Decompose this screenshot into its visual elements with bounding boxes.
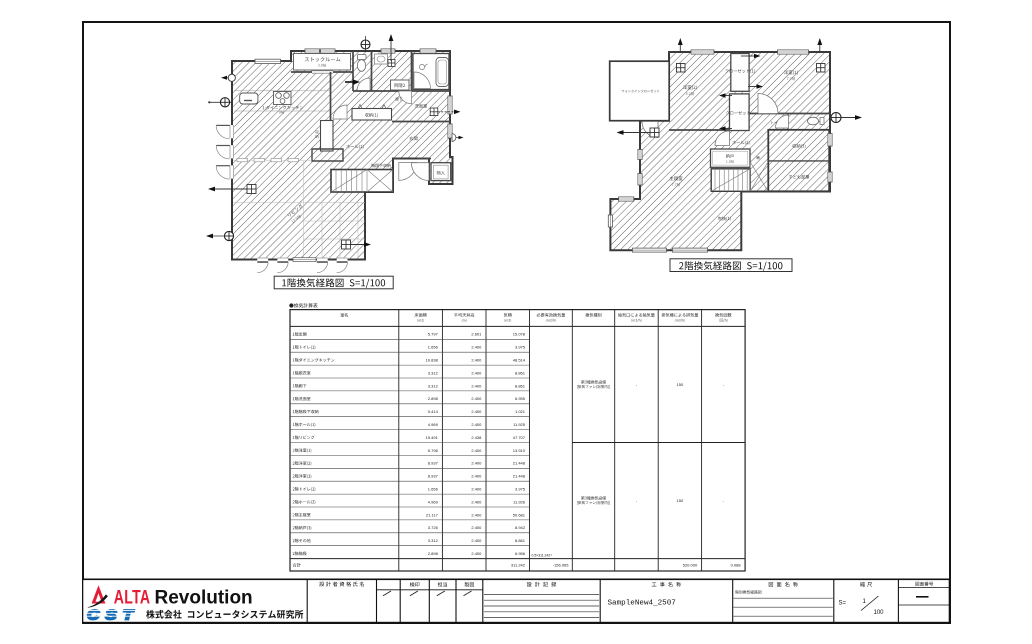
svg-text:15.078: 15.078 <box>513 332 526 337</box>
svg-text:2.438: 2.438 <box>471 435 482 440</box>
svg-text:2.400: 2.400 <box>471 396 482 401</box>
svg-text:-156.065: -156.065 <box>553 563 570 568</box>
svg-text:3.312: 3.312 <box>428 538 439 543</box>
svg-text:ALTA: ALTA <box>114 586 151 608</box>
svg-text:2.400: 2.400 <box>471 422 482 427</box>
svg-text:2.400: 2.400 <box>471 345 482 350</box>
svg-text:19.838: 19.838 <box>426 357 439 362</box>
svg-text:4.969: 4.969 <box>428 422 439 427</box>
svg-text:8.861: 8.861 <box>515 370 526 375</box>
svg-text:2.400: 2.400 <box>471 538 482 543</box>
svg-text:6.956: 6.956 <box>515 551 526 556</box>
svg-text:1.021: 1.021 <box>515 409 526 414</box>
svg-text:8.942: 8.942 <box>515 525 526 530</box>
svg-text:Revolution: Revolution <box>155 587 253 608</box>
svg-text:150: 150 <box>677 498 684 503</box>
svg-text:11.925: 11.925 <box>513 422 526 427</box>
svg-text:311.242: 311.242 <box>511 563 526 568</box>
svg-text:1.656: 1.656 <box>428 345 439 350</box>
svg-text:11.926: 11.926 <box>513 499 526 504</box>
svg-text:8.937: 8.937 <box>428 461 439 466</box>
svg-text:2.400: 2.400 <box>471 357 482 362</box>
svg-text:1.656: 1.656 <box>428 486 439 491</box>
svg-text:2.400: 2.400 <box>471 474 482 479</box>
svg-text:4.969: 4.969 <box>428 499 439 504</box>
svg-text:5.796: 5.796 <box>428 448 439 453</box>
svg-text:2.400: 2.400 <box>471 383 482 388</box>
svg-text:2.898: 2.898 <box>428 396 439 401</box>
svg-text:3.312: 3.312 <box>428 383 439 388</box>
svg-text:100: 100 <box>874 610 885 616</box>
svg-text:47.707: 47.707 <box>513 435 526 440</box>
svg-text:520.000: 520.000 <box>683 563 698 568</box>
svg-text:0.414: 0.414 <box>428 409 439 414</box>
svg-text:S=: S= <box>839 601 847 607</box>
svg-text:48.514: 48.514 <box>513 357 526 362</box>
svg-text:2.400: 2.400 <box>471 512 482 517</box>
svg-text:8.937: 8.937 <box>428 474 439 479</box>
svg-text:19.491: 19.491 <box>426 435 439 440</box>
svg-text:2.400: 2.400 <box>471 525 482 530</box>
svg-text:2.400: 2.400 <box>471 551 482 556</box>
svg-text:0.088: 0.088 <box>731 563 742 568</box>
svg-text:2.400: 2.400 <box>471 486 482 491</box>
svg-text:2.400: 2.400 <box>471 499 482 504</box>
svg-text:2.400: 2.400 <box>471 409 482 414</box>
svg-text:13.910: 13.910 <box>513 448 526 453</box>
svg-text:3.312: 3.312 <box>428 370 439 375</box>
svg-text:2.898: 2.898 <box>428 551 439 556</box>
svg-text:150: 150 <box>677 382 684 387</box>
svg-text:21.448: 21.448 <box>513 474 526 479</box>
svg-text:SampleNew4_2507: SampleNew4_2507 <box>608 599 676 607</box>
svg-text:2.400: 2.400 <box>471 370 482 375</box>
svg-text:2.400: 2.400 <box>471 448 482 453</box>
svg-text:3.975: 3.975 <box>515 345 526 350</box>
svg-text:3.975: 3.975 <box>515 486 526 491</box>
svg-text:21.117: 21.117 <box>426 512 439 517</box>
svg-text:3.726: 3.726 <box>428 525 439 530</box>
svg-text:50.681: 50.681 <box>513 512 526 517</box>
svg-text:0.5×311.242=: 0.5×311.242= <box>532 554 553 558</box>
svg-text:8.861: 8.861 <box>515 383 526 388</box>
svg-text:21.448: 21.448 <box>513 461 526 466</box>
svg-text:5.797: 5.797 <box>428 332 439 337</box>
svg-text:6.955: 6.955 <box>515 396 526 401</box>
svg-text:8.861: 8.861 <box>515 538 526 543</box>
svg-text:2.400: 2.400 <box>471 461 482 466</box>
svg-text:2.601: 2.601 <box>471 332 482 337</box>
